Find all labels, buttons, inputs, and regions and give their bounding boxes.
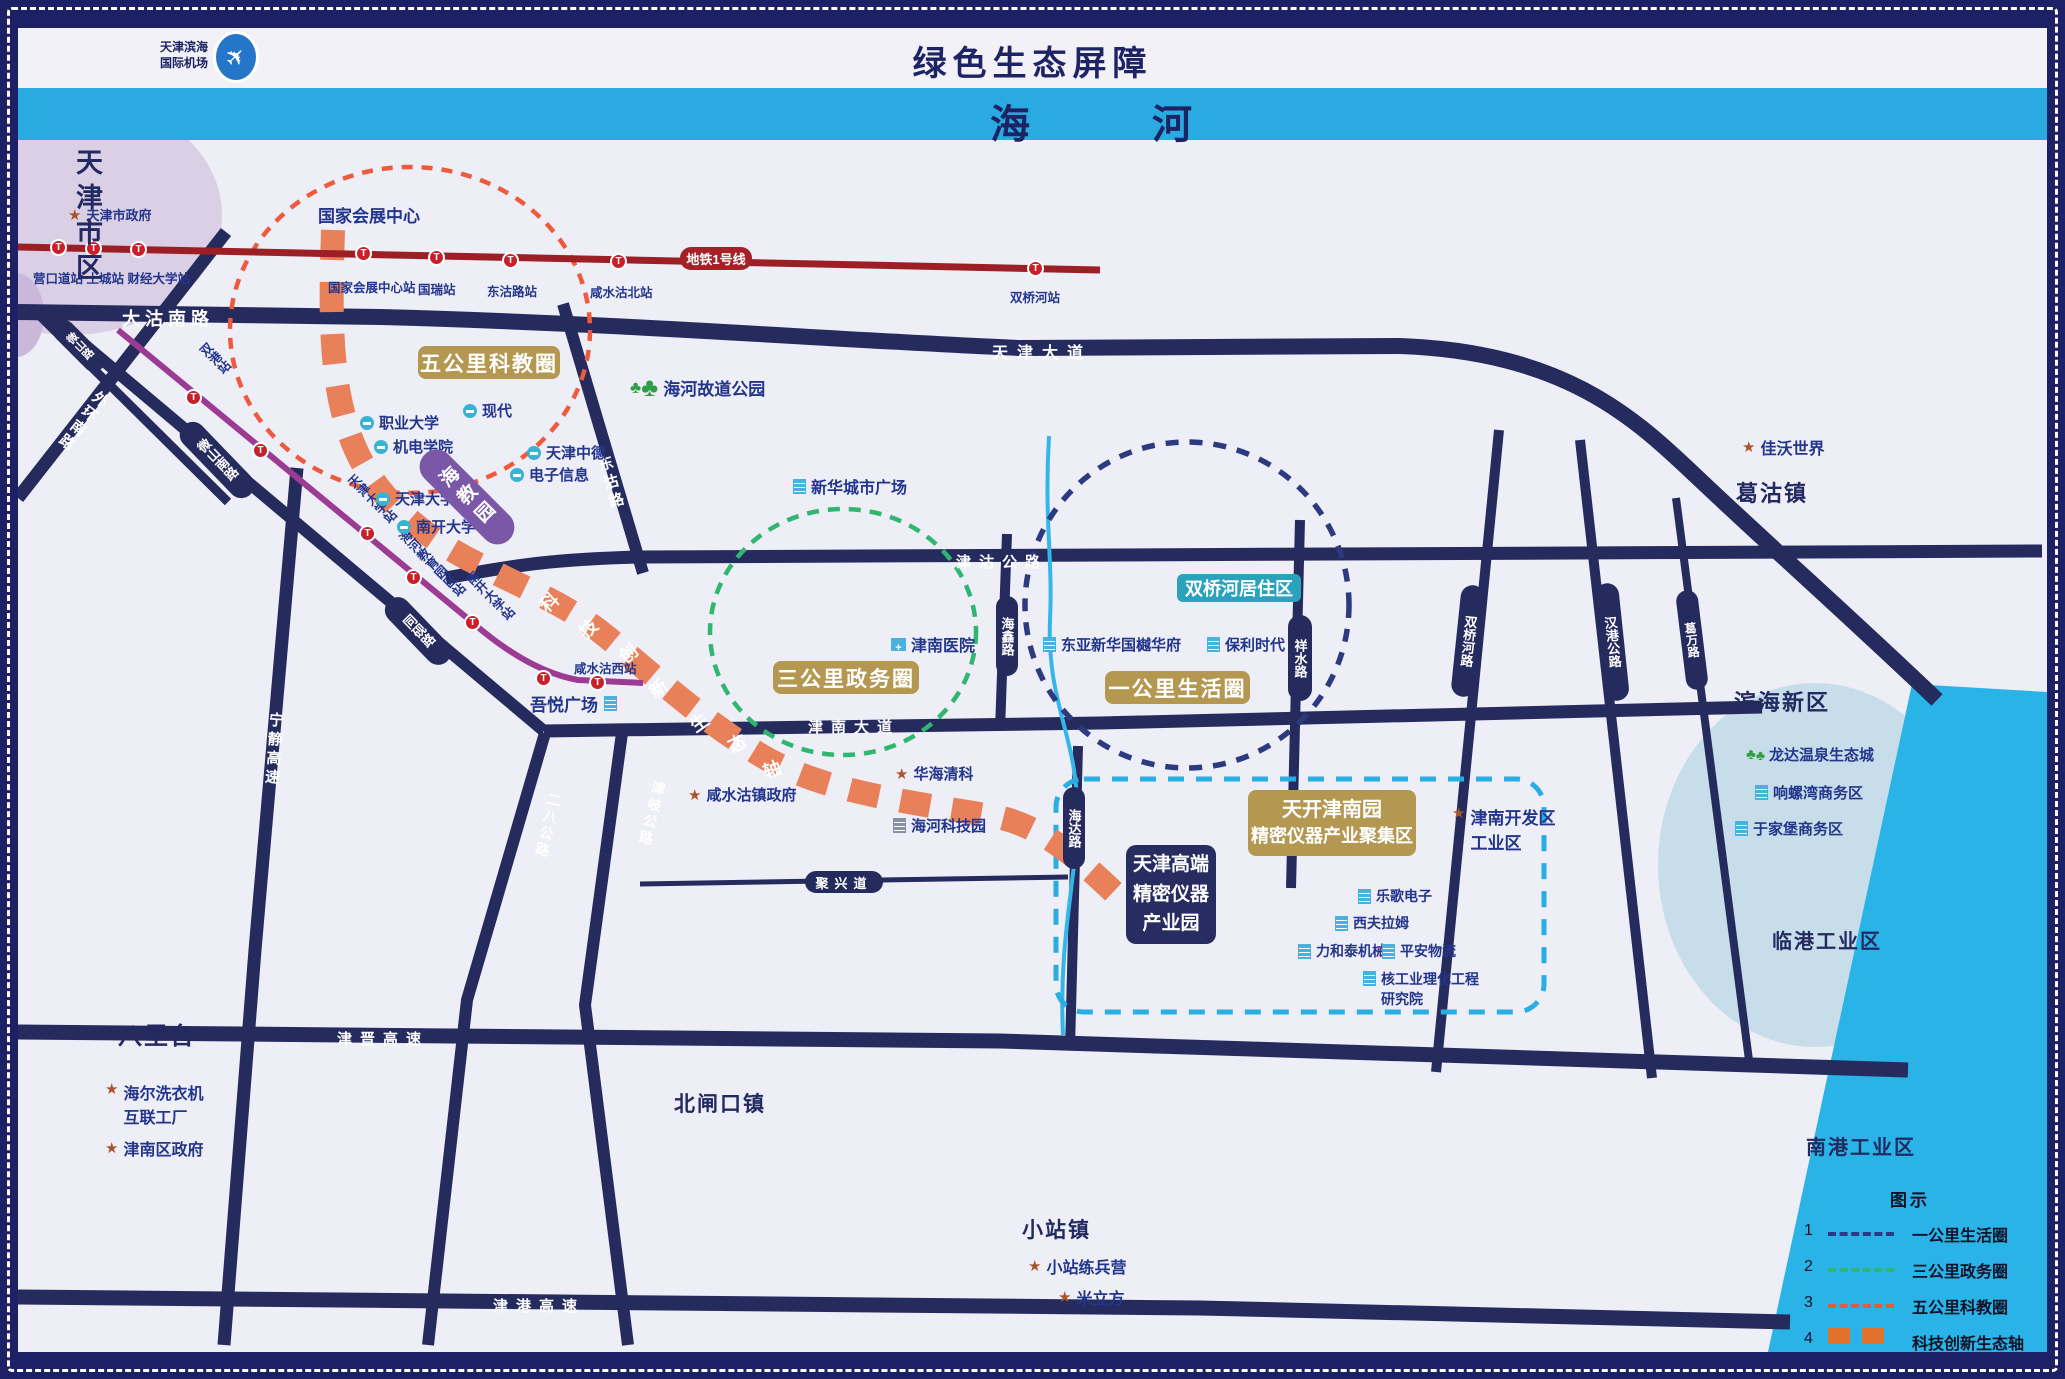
station-label-guorui: 国瑞站 — [418, 279, 456, 298]
poi-xinhua-plaza: 新华城市广场 — [793, 474, 907, 498]
road-label-jinnandadao: 津南大道 — [808, 716, 900, 737]
road-jingang — [18, 1297, 1790, 1322]
metro-station-icon — [535, 670, 552, 687]
road-pill-label: 祥水路 — [1291, 639, 1310, 678]
station-label-donggu: 东沽路站 — [487, 281, 537, 300]
road-pill-haixin: 海鑫路 — [996, 596, 1018, 676]
metro-station-icon — [359, 525, 376, 542]
road-label-dagunan: 大沽南路 — [122, 305, 214, 331]
legend-dash-3km — [1828, 1268, 1894, 1272]
poi-huahai: 华海清科 — [895, 763, 973, 784]
poi-label: 龙达温泉生态城 — [1769, 744, 1874, 765]
poi-label: 东亚新华国樾华府 — [1061, 634, 1181, 655]
poi-label: 吾悦广场 — [530, 691, 598, 716]
frame-left — [0, 0, 18, 1379]
legend-item-num: 4 — [1804, 1330, 1813, 1348]
road-jinjin — [18, 1032, 1908, 1070]
tree-icon: ♣ — [1756, 747, 1765, 763]
zone-box-shuangqiaohe: 双桥河居住区 — [1177, 574, 1301, 602]
metro-station-icon — [130, 241, 147, 258]
zone-label-line1: 天津高端 — [1133, 850, 1209, 879]
poi-xsg-gov: 咸水沽镇政府 — [688, 784, 796, 805]
poi-convention-center: 国家会展中心 — [318, 202, 420, 227]
poi-label: 米立方 — [1076, 1285, 1124, 1309]
poi-label: 乐歌电子 — [1376, 886, 1432, 906]
district-beizhakou: 北闸口镇 — [674, 1088, 766, 1118]
district-gegu: 葛沽镇 — [1736, 476, 1808, 508]
station-label-shuangqiaohe: 双桥河站 — [1010, 287, 1060, 306]
poi-label: 海河故道公园 — [663, 375, 765, 400]
building-icon — [1358, 889, 1371, 904]
road-pill-label: 双桥河路 — [1456, 614, 1480, 668]
road-donggu — [563, 304, 643, 573]
metro-station-icon — [355, 245, 372, 262]
metro-station-icon — [405, 569, 422, 586]
legend-axis-swatch — [1862, 1328, 1884, 1344]
poi-label-line2: 研究院 — [1381, 989, 1479, 1009]
poi-jinnan-gov: 津南区政府 — [105, 1136, 203, 1160]
poi-xiaozhan-camp: 小站练兵营 — [1028, 1254, 1126, 1278]
poi-label-line2: 互联工厂 — [123, 1104, 203, 1128]
poi-xifu: 西夫拉姆 — [1335, 913, 1409, 933]
frame-right — [2047, 0, 2065, 1379]
poi-xiangluowan: 响螺湾商务区 — [1755, 782, 1863, 803]
poi-label: 新华城市广场 — [811, 474, 907, 498]
metro-line1-badge-label: 地铁1号线 — [686, 249, 745, 268]
road-pill-label: 聚兴道 — [815, 873, 872, 892]
metro-station-icon — [50, 239, 67, 256]
zone-box-tiankai: 天开津南园 精密仪器产业聚集区 — [1248, 790, 1416, 856]
district-binhai: 滨海新区 — [1734, 685, 1830, 717]
poi-lihetai: 力和泰机械 — [1298, 941, 1386, 961]
poi-haihe-park: ♣ 海河故道公园 — [630, 372, 765, 403]
road-pill-haida: 海达路 — [1063, 787, 1085, 869]
legend-item-label: 科技创新生态轴 — [1912, 1330, 2024, 1354]
district-lingang: 临港工业区 — [1772, 925, 1882, 954]
district-tianjin-shiqu: 天津市区 — [68, 148, 107, 288]
legend-item-label: 三公里政务圈 — [1912, 1258, 2008, 1282]
legend-dash-1km — [1828, 1232, 1894, 1236]
poi-wuyue-plaza: 吾悦广场 — [530, 691, 617, 716]
building-icon — [1043, 637, 1056, 652]
district-nangang: 南港工业区 — [1806, 1131, 1916, 1160]
poi-label: 现代 — [482, 400, 512, 421]
zone-label: 一公里生活圈 — [1109, 673, 1247, 703]
poi-milifang: 米立方 — [1058, 1285, 1124, 1309]
road-label-jingu: 津沽公路 — [956, 551, 1048, 572]
metro-station-icon — [502, 252, 519, 269]
road-label-jinjin: 津晋高速 — [337, 1028, 429, 1049]
poi-label: 津南医院 — [911, 632, 975, 656]
metro-station-icon — [610, 253, 627, 270]
poi-label: 于家堡商务区 — [1753, 818, 1843, 839]
poi-jiawo: 佳沃世界 — [1742, 435, 1824, 459]
building-icon — [1755, 785, 1768, 800]
metro-station-icon — [428, 249, 445, 266]
poi-lege: 乐歌电子 — [1358, 886, 1432, 906]
haihe-banner — [18, 88, 2047, 140]
grad-cap-icon — [463, 404, 477, 418]
legend-item-label: 五公里科教圈 — [1912, 1294, 2008, 1318]
grad-cap-icon — [510, 468, 524, 482]
zone-label-line2: 精密仪器产业聚集区 — [1251, 824, 1413, 849]
haihe-banner-char-right: 河 — [1152, 92, 1192, 150]
road-label-tianjindadao: 天津大道 — [992, 339, 1092, 363]
poi-label-line1: 海尔洗衣机 — [123, 1080, 203, 1104]
building-icon — [604, 696, 617, 711]
building-icon-grey — [893, 818, 906, 833]
poi-label: 海尔洗衣机 互联工厂 — [123, 1080, 203, 1128]
grad-cap-icon — [527, 446, 541, 460]
poi-label-line1: 核工业理化工程 — [1381, 969, 1479, 989]
poi-haihe-tech-park: 海河科技园 — [893, 815, 986, 836]
grad-cap-icon — [397, 520, 411, 534]
road-ningjing — [224, 468, 297, 1345]
metro1-west-stations: 营口道站 土城站 财经大学站 — [33, 268, 190, 287]
frame-top — [0, 0, 2065, 28]
page-title-text: 绿色生态屏障 — [913, 45, 1153, 83]
poi-kaifaqu: 津南开发区 工业区 — [1452, 804, 1555, 854]
zone-label: 双桥河居住区 — [1185, 575, 1293, 601]
poi-label: 天津中德 — [546, 442, 606, 463]
legend-axis-swatch — [1828, 1328, 1850, 1344]
zone-box-1km: 一公里生活圈 — [1105, 671, 1250, 704]
legend-item-num: 3 — [1804, 1294, 1813, 1312]
airport-name-line2: 国际机场 — [130, 56, 208, 72]
hospital-icon — [891, 638, 906, 651]
poi-dianzi-xinxi: 电子信息 — [510, 464, 589, 485]
map-canvas: 地铁1号线 营口道站 土城站 财经大学站 国家会展中心站 国瑞站 东沽路站 咸水… — [0, 0, 2065, 1379]
grad-cap-icon — [360, 416, 374, 430]
airport-logo: ✈ — [213, 31, 259, 83]
poi-dongya: 东亚新华国樾华府 — [1043, 634, 1181, 655]
legend-item-num: 2 — [1804, 1258, 1813, 1276]
legend: 图示 1 一公里生活圈 2 三公里政务圈 3 五公里科教圈 4 科技创新生态轴 — [1790, 1180, 2040, 1352]
road-pill-label: 海达路 — [1065, 809, 1084, 848]
poi-xiandai: 现代 — [463, 400, 512, 421]
grad-cap-icon — [376, 492, 390, 506]
haihe-banner-char-left: 海 — [990, 92, 1030, 150]
poi-zhongde: 天津中德 — [527, 442, 606, 463]
poi-yujiapu: 于家堡商务区 — [1735, 818, 1843, 839]
building-icon — [793, 479, 806, 494]
road-pill-label: 汉港公路 — [1600, 615, 1624, 669]
zone-box-5km: 五公里科教圈 — [418, 346, 560, 379]
zone-label: 三公里政务圈 — [777, 663, 915, 693]
plane-icon: ✈ — [219, 40, 254, 75]
poi-label: 津南开发区 工业区 — [1470, 804, 1555, 854]
poi-jinnan-hospital: 津南医院 — [891, 632, 975, 656]
airport-name-line1: 天津滨海 — [130, 40, 208, 56]
frame-bottom — [0, 1352, 2065, 1379]
building-icon — [1207, 637, 1220, 652]
zone-label: 五公里科教圈 — [420, 348, 558, 378]
poi-label: 华海清科 — [913, 763, 973, 784]
poi-label: 津南区政府 — [123, 1136, 203, 1160]
page-title: 绿色生态屏障 — [0, 36, 2065, 85]
legend-item-num: 1 — [1804, 1222, 1813, 1240]
zone-label-line3: 产业园 — [1142, 909, 1199, 938]
building-icon — [1363, 971, 1376, 986]
road-pill-label: 海鑫路 — [998, 617, 1017, 656]
poi-longda: ♣ 龙达温泉生态城 — [1746, 744, 1874, 765]
district-xiaozhan: 小站镇 — [1022, 1214, 1091, 1244]
zone-box-3km: 三公里政务圈 — [773, 661, 919, 694]
metro-line1-badge: 地铁1号线 — [680, 247, 752, 270]
poi-label: 核工业理化工程 研究院 — [1381, 969, 1479, 1009]
tree-icon: ♣ — [641, 372, 658, 403]
poi-label: 西夫拉姆 — [1353, 913, 1409, 933]
legend-item-label: 一公里生活圈 — [1912, 1222, 2008, 1246]
poi-label: 佳沃世界 — [1760, 435, 1824, 459]
poi-zhiye-univ: 职业大学 — [360, 412, 439, 433]
legend-title: 图示 — [1890, 1186, 1930, 1211]
district-balitai: 八里台 — [118, 1016, 196, 1051]
road-label-jingang: 津港高速 — [493, 1295, 585, 1316]
station-label-huizhan: 国家会展中心站 — [328, 277, 416, 296]
grad-cap-icon — [374, 440, 388, 454]
poi-label: 国家会展中心 — [318, 202, 420, 227]
metro-station-icon — [252, 442, 269, 459]
poi-label: 小站练兵营 — [1046, 1254, 1126, 1278]
poi-pingan: 平安物流 — [1382, 941, 1456, 961]
poi-label: 海河科技园 — [911, 815, 986, 836]
poi-label: 平安物流 — [1400, 941, 1456, 961]
building-icon — [1335, 916, 1348, 931]
zone-label-line2: 精密仪器 — [1133, 880, 1209, 909]
road-pill-xiangshui: 祥水路 — [1288, 615, 1312, 701]
poi-label: 力和泰机械 — [1316, 941, 1386, 961]
station-label-xianshuigu-north: 咸水沽北站 — [590, 282, 653, 301]
poi-label: 保利时代 — [1225, 634, 1285, 655]
poi-label: 咸水沽镇政府 — [706, 784, 796, 805]
legend-dash-5km — [1828, 1304, 1894, 1308]
building-icon — [1382, 944, 1395, 959]
building-icon — [1735, 821, 1748, 836]
road-pill-juxing: 聚兴道 — [805, 871, 883, 893]
road-pill-label: 葛万路 — [1681, 621, 1702, 659]
zone-label-line1: 天开津南园 — [1282, 796, 1382, 824]
zone-box-gaoduan: 天津高端 精密仪器 产业园 — [1126, 845, 1216, 944]
poi-label: 职业大学 — [379, 412, 439, 433]
poi-label: 电子信息 — [529, 464, 589, 485]
metro-station-icon — [185, 389, 202, 406]
poi-label: 响螺湾商务区 — [1773, 782, 1863, 803]
road-hangang — [1580, 440, 1652, 1078]
poi-baoli: 保利时代 — [1207, 634, 1285, 655]
poi-label-line2: 工业区 — [1470, 829, 1555, 854]
building-icon — [1298, 944, 1311, 959]
metro-station-icon — [1027, 260, 1044, 277]
airport-name: 天津滨海 国际机场 — [130, 40, 208, 71]
poi-haier: 海尔洗衣机 互联工厂 — [105, 1080, 203, 1128]
poi-hegong: 核工业理化工程 研究院 — [1363, 969, 1479, 1009]
metro-station-icon — [464, 614, 481, 631]
poi-label-line1: 津南开发区 — [1470, 804, 1555, 829]
